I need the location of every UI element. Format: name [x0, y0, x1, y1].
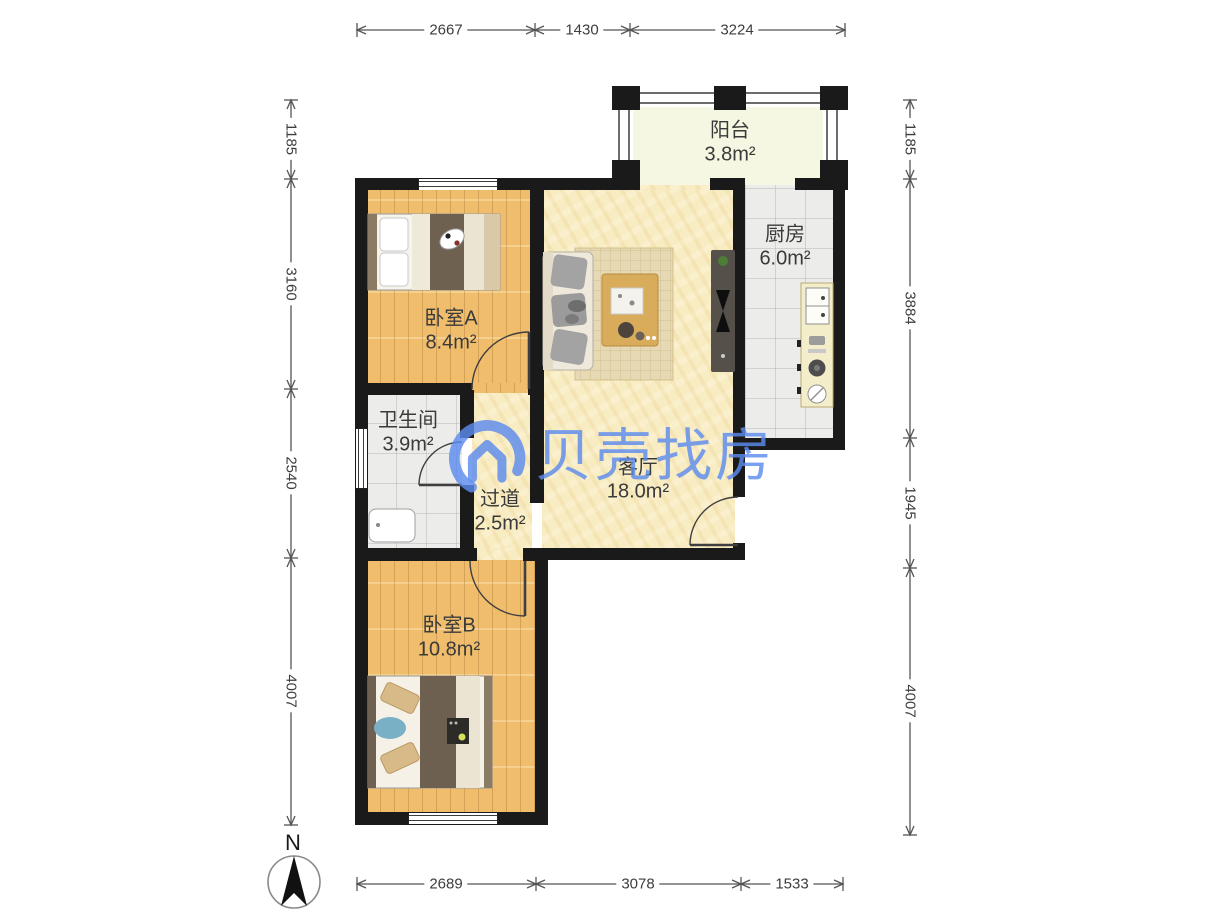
room-label-bedroom-b: 卧室B 10.8m²	[418, 614, 480, 661]
kitchen-counter	[797, 283, 833, 407]
room-name: 卧室B	[418, 614, 480, 638]
watermark: 贝壳找房	[447, 419, 775, 493]
washing-machine	[369, 509, 415, 542]
floorplan-canvas: 阳台 3.8m² 厨房 6.0m² 卧室A 8.4m² 卫生间 3.9m² 过道…	[0, 0, 1207, 914]
dim-left-2: 3160	[283, 262, 300, 305]
room-name: 卫生间	[378, 409, 438, 433]
room-name: 厨房	[759, 223, 810, 247]
room-area: 6.0m²	[759, 247, 810, 271]
dim-right-1: 1185	[902, 118, 919, 160]
dim-top-3: 3224	[715, 22, 758, 39]
dim-left-4: 4007	[283, 669, 300, 712]
dim-top-2: 1430	[560, 22, 603, 39]
room-area: 2.5m²	[474, 512, 525, 536]
sofa	[543, 252, 593, 370]
beike-logo-icon	[447, 419, 529, 493]
dim-right-2: 3884	[902, 286, 919, 329]
room-area: 10.8m²	[418, 638, 480, 662]
watermark-text: 贝壳找房	[535, 428, 775, 485]
door-arc-entry	[690, 497, 738, 545]
compass-north-icon	[268, 856, 320, 908]
bed-b	[368, 676, 492, 788]
room-area: 3.9m²	[378, 433, 438, 457]
dim-bottom-1: 2689	[424, 876, 467, 893]
window	[408, 813, 498, 824]
door-arc-bedroom-a	[472, 332, 529, 389]
window	[356, 428, 367, 489]
room-name: 卧室A	[424, 307, 477, 331]
coffee-table	[602, 274, 658, 346]
room-area: 3.8m²	[704, 143, 755, 167]
room-label-bedroom-a: 卧室A 8.4m²	[424, 307, 477, 354]
dim-left-1: 1185	[283, 118, 300, 160]
dim-top-1: 2667	[424, 22, 467, 39]
compass-north-label: N	[285, 830, 301, 856]
window	[418, 179, 498, 190]
dim-bottom-2: 3078	[616, 876, 659, 893]
dim-bottom-3: 1533	[770, 876, 813, 893]
dim-right-3: 1945	[902, 481, 919, 524]
dim-left-3: 2540	[283, 451, 300, 494]
door-arc-bedroom-b	[470, 561, 525, 616]
dim-right-4: 4007	[902, 679, 919, 722]
bed-a	[368, 214, 500, 290]
room-area: 8.4m²	[424, 331, 477, 355]
room-label-hallway: 过道 2.5m²	[474, 488, 525, 535]
room-label-bathroom: 卫生间 3.9m²	[378, 409, 438, 456]
room-label-balcony: 阳台 3.8m²	[704, 119, 755, 166]
room-name: 阳台	[704, 119, 755, 143]
tv-cabinet	[711, 250, 735, 372]
room-label-kitchen: 厨房 6.0m²	[759, 223, 810, 270]
